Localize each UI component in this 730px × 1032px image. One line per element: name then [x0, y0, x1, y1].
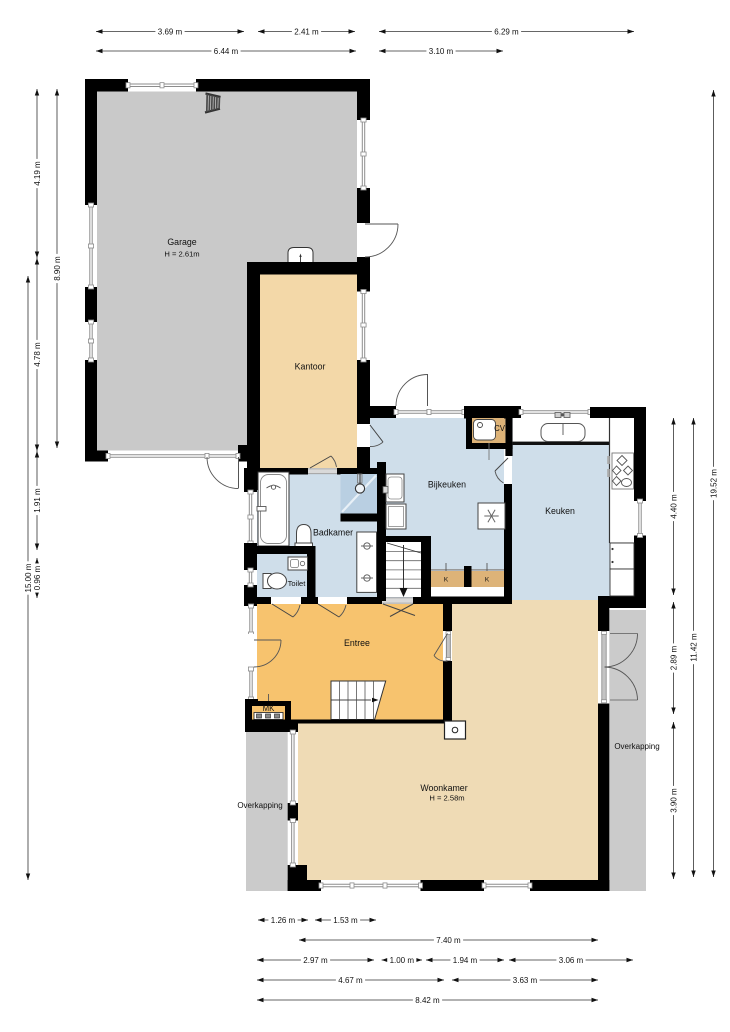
svg-text:H = 2.61m: H = 2.61m: [164, 250, 199, 259]
svg-text:Bijkeuken: Bijkeuken: [428, 480, 466, 490]
svg-text:Keuken: Keuken: [545, 506, 575, 516]
svg-text:1.94 m: 1.94 m: [453, 956, 478, 965]
svg-text:K: K: [485, 577, 490, 584]
svg-text:H = 2.58m: H = 2.58m: [429, 794, 464, 803]
svg-text:6.29 m: 6.29 m: [494, 27, 519, 36]
svg-text:3.90 m: 3.90 m: [669, 788, 678, 813]
svg-text:2.89 m: 2.89 m: [669, 645, 678, 670]
svg-text:1.00 m: 1.00 m: [390, 956, 415, 965]
svg-text:K: K: [444, 577, 449, 584]
svg-text:Woonkamer: Woonkamer: [420, 783, 467, 793]
svg-text:3.63 m: 3.63 m: [513, 976, 538, 985]
svg-text:1.53 m: 1.53 m: [333, 916, 358, 925]
svg-text:4.78 m: 4.78 m: [33, 342, 42, 367]
svg-text:1.91 m: 1.91 m: [33, 488, 42, 513]
svg-text:0.96 m: 0.96 m: [33, 565, 42, 590]
svg-text:3.06 m: 3.06 m: [559, 956, 584, 965]
svg-text:Garage: Garage: [167, 237, 196, 247]
svg-text:1.26 m: 1.26 m: [271, 916, 296, 925]
svg-text:3.69 m: 3.69 m: [158, 27, 183, 36]
svg-text:Entree: Entree: [344, 638, 370, 648]
svg-text:7.40 m: 7.40 m: [436, 936, 461, 945]
svg-text:3.10 m: 3.10 m: [429, 47, 454, 56]
svg-text:8.42 m: 8.42 m: [415, 996, 440, 1005]
svg-text:4.67 m: 4.67 m: [338, 976, 363, 985]
svg-text:11.42 m: 11.42 m: [689, 633, 698, 662]
svg-text:Kantoor: Kantoor: [295, 362, 326, 372]
svg-text:Overkapping: Overkapping: [614, 742, 659, 751]
svg-text:6.44 m: 6.44 m: [214, 47, 239, 56]
svg-text:2.41 m: 2.41 m: [294, 27, 319, 36]
svg-text:4.19 m: 4.19 m: [33, 161, 42, 186]
svg-text:Overkapping: Overkapping: [237, 801, 282, 810]
svg-text:8.90 m: 8.90 m: [53, 256, 62, 281]
svg-text:15.00 m: 15.00 m: [24, 563, 33, 592]
svg-text:MK: MK: [263, 704, 275, 713]
svg-text:4.40 m: 4.40 m: [669, 494, 678, 519]
svg-text:19.52 m: 19.52 m: [709, 469, 718, 498]
svg-text:Toilet: Toilet: [288, 579, 307, 588]
svg-text:CV: CV: [494, 424, 506, 433]
svg-text:Badkamer: Badkamer: [313, 528, 353, 538]
svg-text:2.97 m: 2.97 m: [303, 956, 328, 965]
